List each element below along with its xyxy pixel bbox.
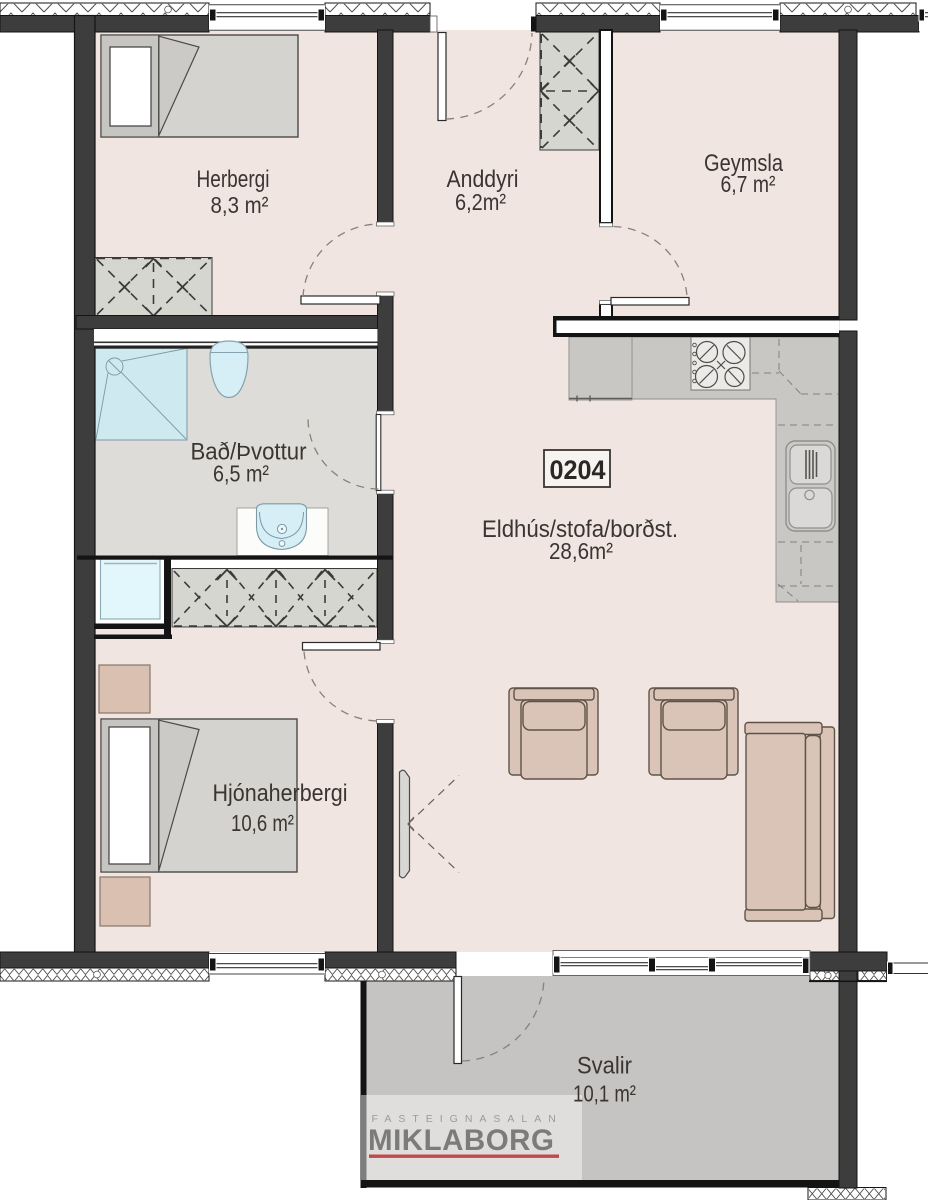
svg-text:0204: 0204 xyxy=(550,455,606,485)
svg-text:10,6 m²: 10,6 m² xyxy=(231,810,294,836)
svg-text:6,2m²: 6,2m² xyxy=(455,189,506,215)
svg-text:6,7 m²: 6,7 m² xyxy=(721,171,776,197)
svg-text:6,5 m²: 6,5 m² xyxy=(213,461,269,487)
svg-text:8,3 m²: 8,3 m² xyxy=(211,192,269,218)
svg-text:Herbergi: Herbergi xyxy=(197,166,270,193)
svg-text:Svalir: Svalir xyxy=(577,1053,632,1080)
svg-text:10,1 m²: 10,1 m² xyxy=(573,1081,636,1107)
svg-text:Hjónaherbergi: Hjónaherbergi xyxy=(213,780,348,807)
svg-text:MIKLABORG: MIKLABORG xyxy=(368,1124,554,1157)
svg-text:28,6m²: 28,6m² xyxy=(549,538,613,564)
